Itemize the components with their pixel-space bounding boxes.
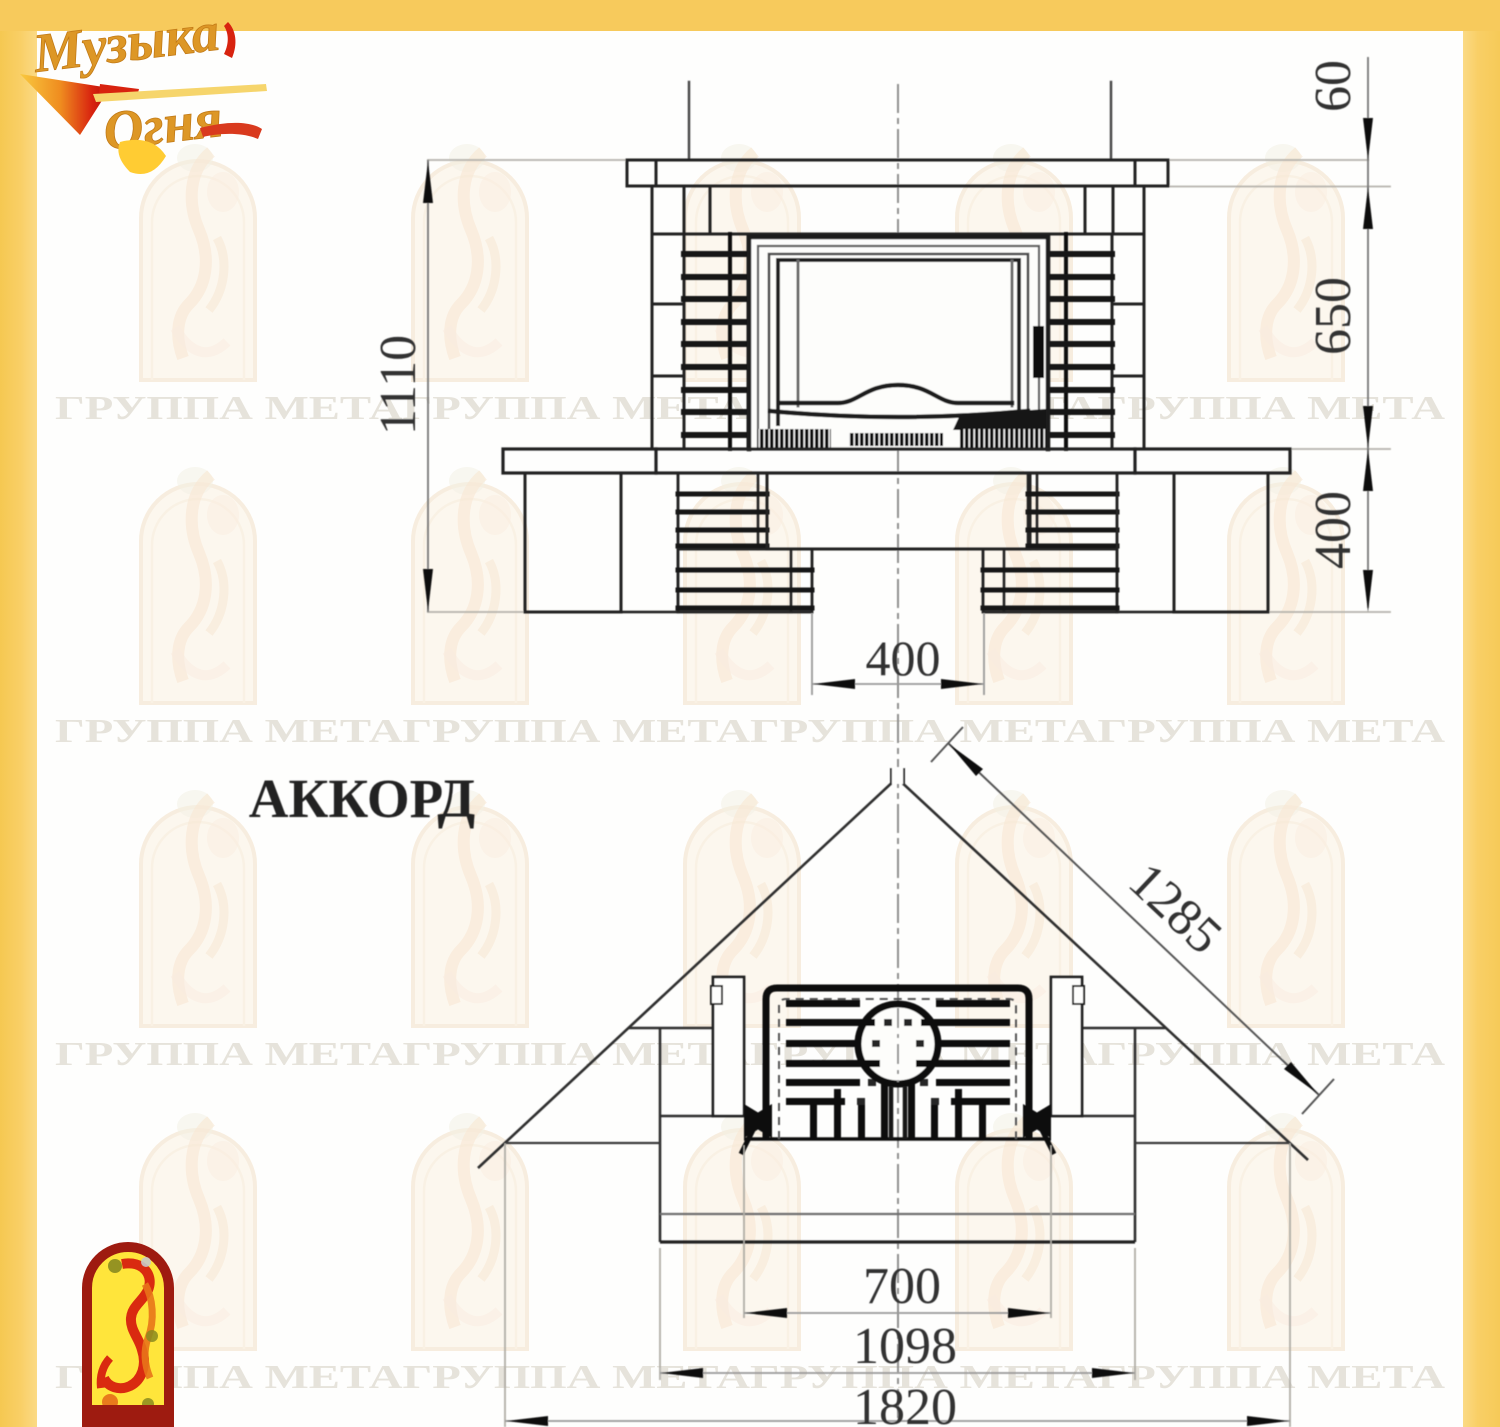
svg-text:ГРУППА МЕТАГРУППА МЕТАГРУППА М: ГРУППА МЕТАГРУППА МЕТАГРУППА МЕТАГРУППА … <box>55 713 1446 750</box>
svg-text:700: 700 <box>863 1258 941 1315</box>
svg-text:1098: 1098 <box>853 1318 957 1375</box>
svg-text:1820: 1820 <box>853 1379 957 1427</box>
svg-text:ГРУППА МЕТАГРУППА МЕТАГРУППА М: ГРУППА МЕТАГРУППА МЕТАГРУППА МЕТАГРУППА … <box>55 1036 1446 1073</box>
svg-text:1110: 1110 <box>370 335 427 435</box>
svg-text:АККОРД: АККОРД <box>249 768 476 829</box>
svg-text:650: 650 <box>1305 277 1362 355</box>
svg-text:ГРУППА МЕТАГРУППА МЕТАГРУППА М: ГРУППА МЕТАГРУППА МЕТАГРУППА МЕТАГРУППА … <box>55 1359 1446 1396</box>
svg-text:400: 400 <box>866 630 941 686</box>
svg-text:60: 60 <box>1305 60 1362 112</box>
svg-text:400: 400 <box>1305 491 1362 569</box>
